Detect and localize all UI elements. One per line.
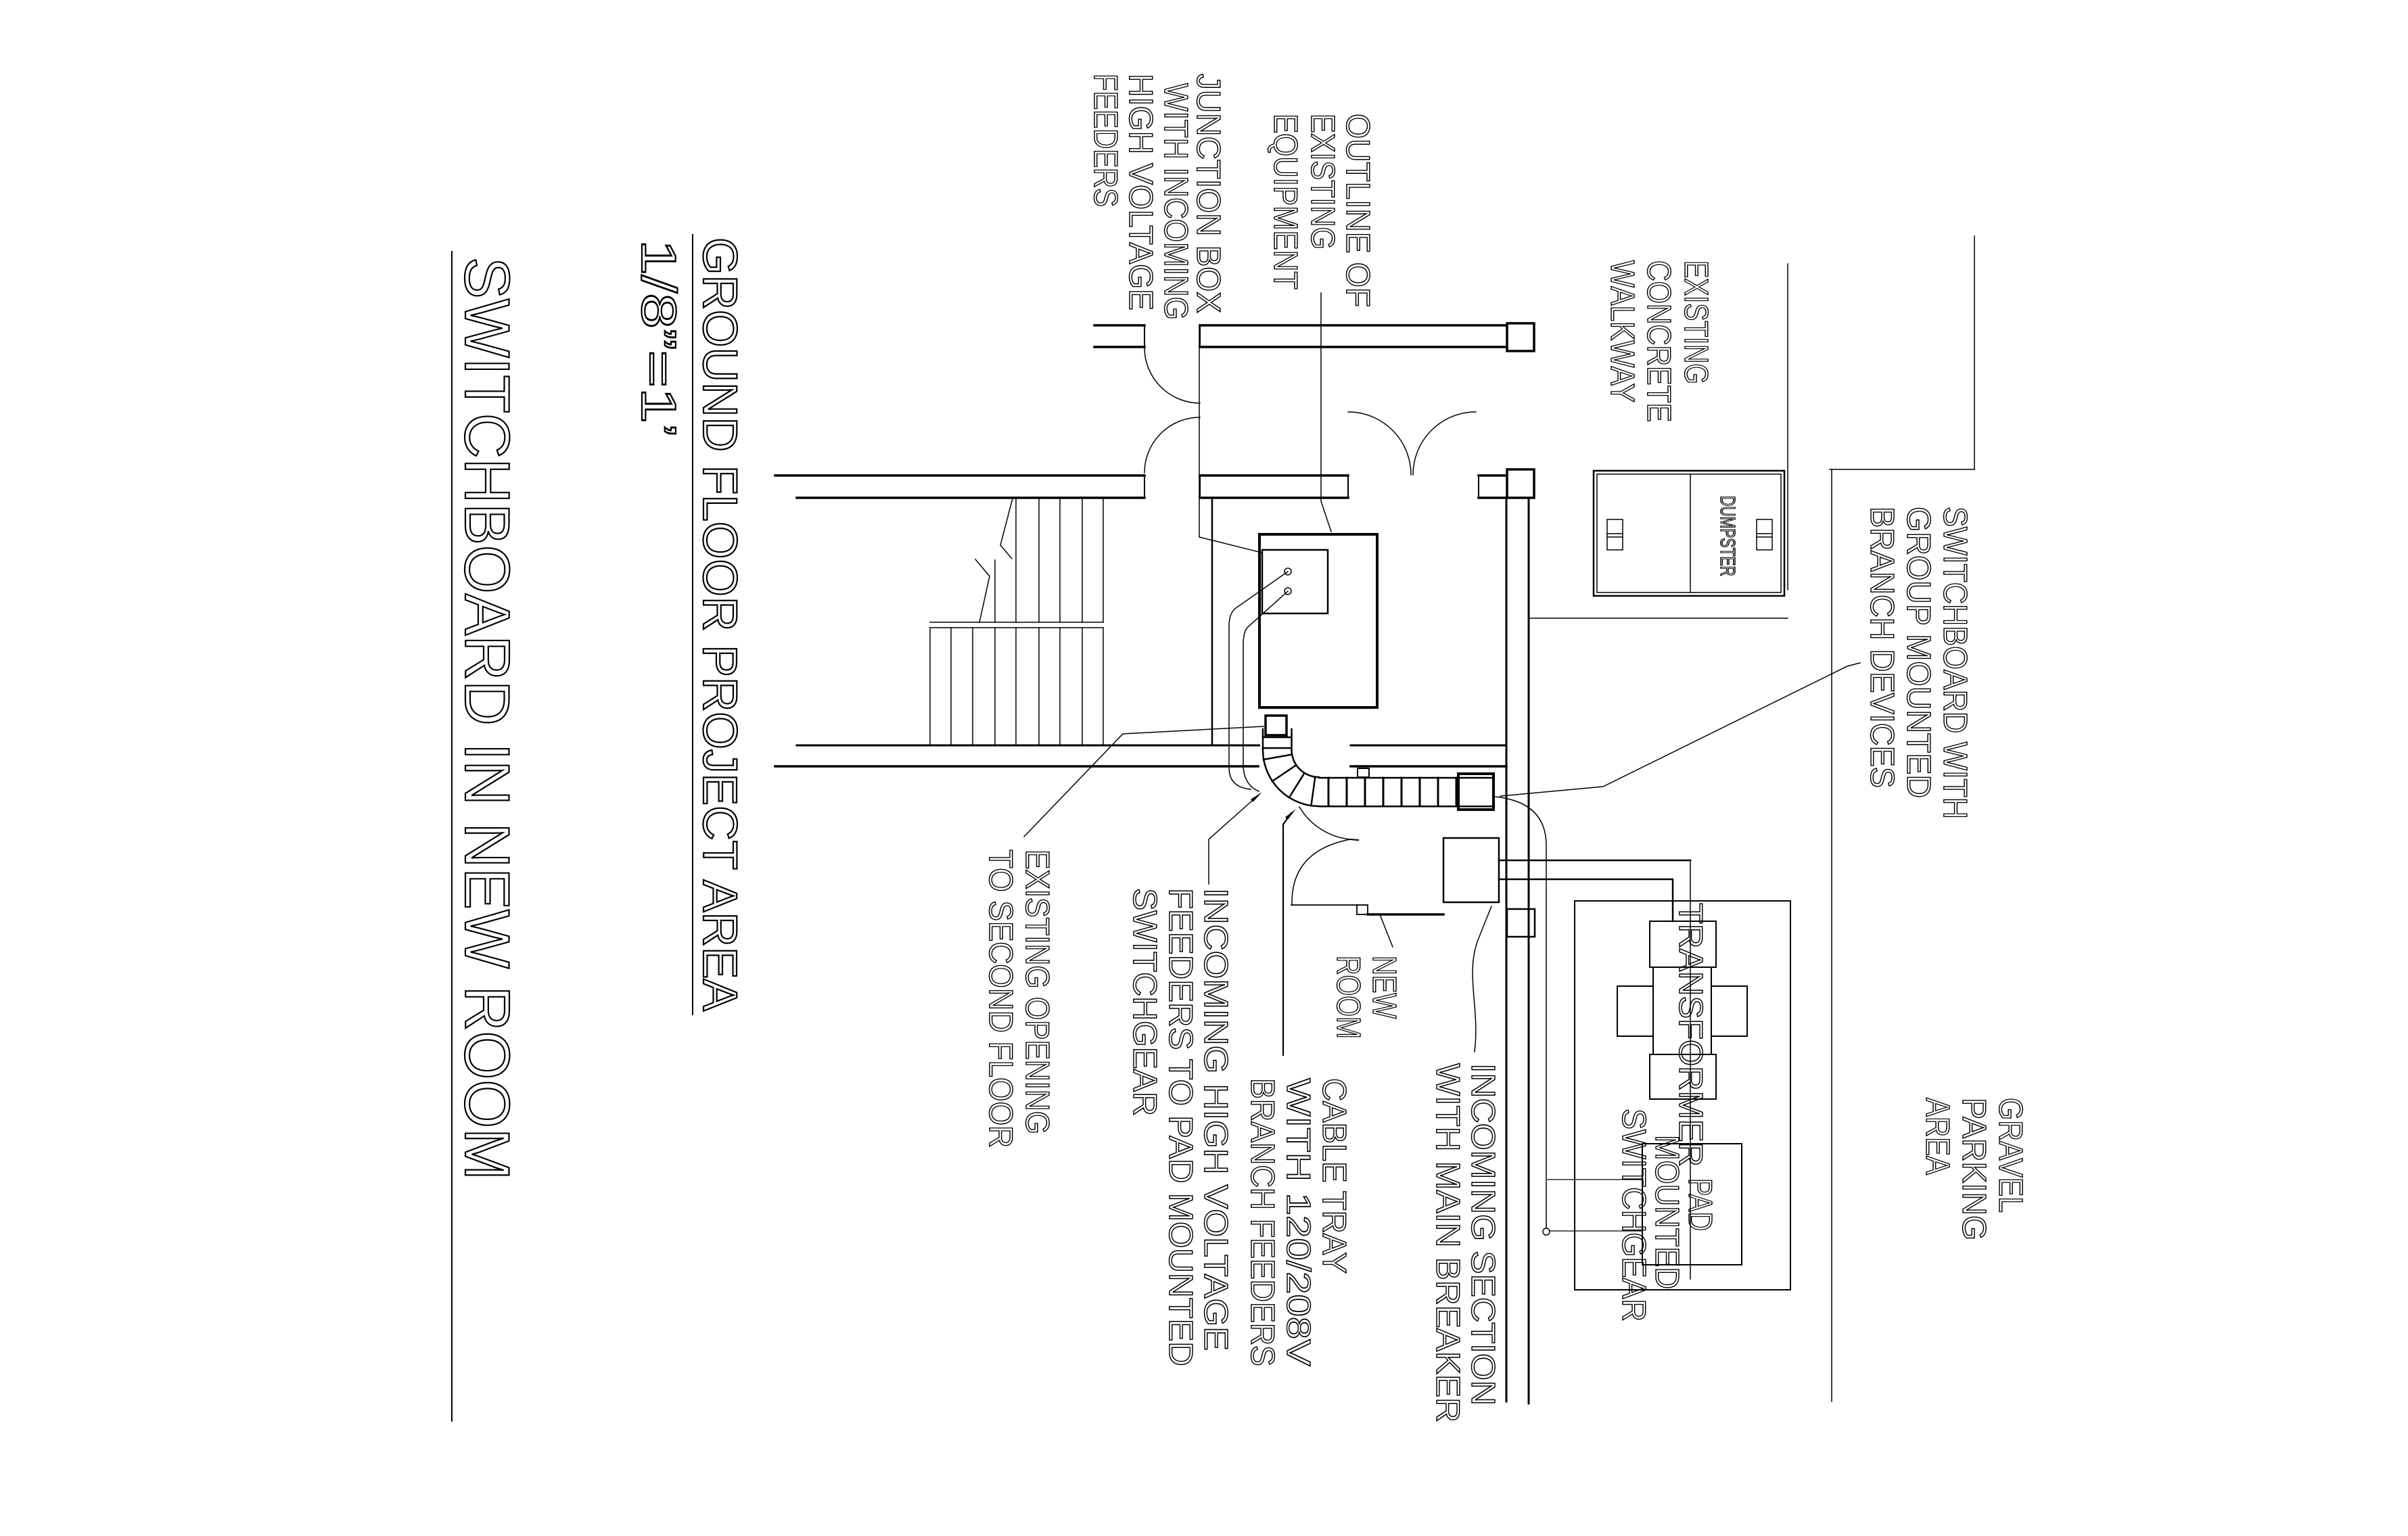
svg-text:OUTLINE OF: OUTLINE OF	[1339, 114, 1376, 307]
svg-text:SWITCHBOARD WITH: SWITCHBOARD WITH	[1937, 507, 1973, 819]
svg-text:WITH INCOMING: WITH INCOMING	[1157, 83, 1194, 320]
svg-text:HIGH VOLTAGE: HIGH VOLTAGE	[1122, 74, 1159, 310]
svg-text:GROUND FLOOR PROJECT AREA: GROUND FLOOR PROJECT AREA	[693, 237, 746, 1012]
svg-text:WALKWAY: WALKWAY	[1604, 260, 1640, 402]
svg-text:CONCRETE: CONCRETE	[1640, 260, 1677, 422]
svg-text:EXISTING OPENING: EXISTING OPENING	[1019, 850, 1055, 1134]
svg-text:EXISTING: EXISTING	[1677, 260, 1714, 384]
svg-text:INCOMING HIGH VOLTAGE: INCOMING HIGH VOLTAGE	[1197, 888, 1234, 1351]
svg-text:BRANCH FEEDERS: BRANCH FEEDERS	[1244, 1078, 1280, 1366]
svg-text:EXISTING: EXISTING	[1304, 114, 1341, 250]
svg-text:EQUIPMENT: EQUIPMENT	[1267, 114, 1303, 289]
svg-text:INCOMING SECTION: INCOMING SECTION	[1464, 1063, 1501, 1405]
svg-text:SWITCHBOARD IN NEW ROOM: SWITCHBOARD IN NEW ROOM	[452, 257, 523, 1180]
svg-text:SWITCHGEAR: SWITCHGEAR	[1126, 888, 1163, 1116]
svg-text:AREA: AREA	[1919, 1098, 1955, 1175]
svg-text:TO SECOND FLOOR: TO SECOND FLOOR	[982, 850, 1019, 1148]
svg-text:WITH MAIN BREAKER: WITH MAIN BREAKER	[1429, 1063, 1466, 1422]
svg-text:WITH 120/208V: WITH 120/208V	[1280, 1078, 1316, 1366]
svg-text:GRAVEL: GRAVEL	[1992, 1098, 2029, 1213]
svg-text:ROOM: ROOM	[1330, 956, 1366, 1039]
svg-text:FEEDERS TO PAD MOUNTED: FEEDERS TO PAD MOUNTED	[1162, 888, 1199, 1366]
svg-text:MOUNTED: MOUNTED	[1648, 1135, 1685, 1289]
svg-text:FEEDERS: FEEDERS	[1087, 74, 1124, 207]
svg-text:GROUP MOUNTED: GROUP MOUNTED	[1900, 507, 1937, 798]
svg-text:DUMPSTER: DUMPSTER	[1716, 496, 1740, 576]
svg-text:SWITCHGEAR: SWITCHGEAR	[1615, 1109, 1652, 1322]
svg-text:PARKING: PARKING	[1955, 1098, 1992, 1240]
svg-text:TRANSFORMER: TRANSFORMER	[1672, 903, 1709, 1167]
svg-text:CABLE TRAY: CABLE TRAY	[1316, 1078, 1352, 1274]
svg-text:BRANCH DEVICES: BRANCH DEVICES	[1863, 507, 1900, 788]
svg-text:NEW: NEW	[1366, 956, 1402, 1019]
svg-text:PAD: PAD	[1682, 1178, 1718, 1231]
svg-text:1/8”=1’: 1/8”=1’	[631, 239, 685, 438]
svg-text:JUNCTION BOX: JUNCTION BOX	[1190, 74, 1226, 313]
